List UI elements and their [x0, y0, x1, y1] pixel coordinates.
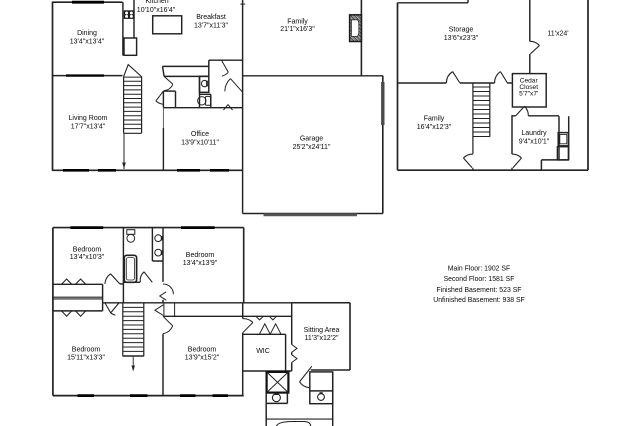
svg-text:13'4"x13'9": 13'4"x13'9" — [183, 260, 218, 267]
svg-text:Garage: Garage — [300, 136, 323, 143]
svg-text:Bedroom: Bedroom — [186, 252, 215, 259]
svg-text:13'7"x11'3": 13'7"x11'3" — [194, 23, 228, 30]
svg-text:Storage: Storage — [449, 27, 474, 34]
svg-text:Dining: Dining — [77, 30, 97, 37]
svg-text:21'1"x16'3": 21'1"x16'3" — [280, 26, 315, 33]
svg-text:16'4"x12'3": 16'4"x12'3" — [417, 124, 452, 131]
svg-text:10'10"x16'4": 10'10"x16'4" — [137, 7, 176, 14]
svg-text:9'4"x10'1": 9'4"x10'1" — [519, 139, 550, 146]
svg-text:Breakfast: Breakfast — [196, 14, 226, 21]
svg-text:Second Floor: 1581 SF: Second Floor: 1581 SF — [444, 276, 515, 283]
svg-text:13'9"x15'2": 13'9"x15'2" — [185, 355, 220, 362]
svg-text:13'9"x10'11": 13'9"x10'11" — [181, 140, 219, 147]
svg-text:Family: Family — [424, 116, 445, 123]
svg-text:13'4"x10'3": 13'4"x10'3" — [70, 254, 105, 261]
svg-text:13'4"x13'4": 13'4"x13'4" — [70, 39, 105, 46]
svg-text:Unfinished Basement: 938 SF: Unfinished Basement: 938 SF — [433, 297, 525, 304]
svg-text:25'2"x24'11": 25'2"x24'11" — [293, 144, 331, 151]
svg-text:5'7"x7': 5'7"x7' — [519, 91, 538, 98]
svg-text:13'6"x23'3": 13'6"x23'3" — [444, 35, 479, 42]
svg-text:Living Room: Living Room — [69, 115, 108, 122]
svg-text:11'x24': 11'x24' — [547, 31, 568, 38]
svg-text:Bedroom: Bedroom — [73, 246, 102, 253]
svg-text:15'11"x13'3": 15'11"x13'3" — [67, 355, 105, 362]
svg-text:Kitchen: Kitchen — [145, 0, 168, 5]
svg-text:17'7"x13'4": 17'7"x13'4" — [71, 124, 106, 131]
svg-text:Sitting Area: Sitting Area — [304, 327, 340, 334]
svg-text:Main Floor: 1902 SF: Main Floor: 1902 SF — [448, 266, 510, 273]
svg-text:Bedroom: Bedroom — [72, 347, 101, 354]
svg-text:11'3"x12'2": 11'3"x12'2" — [305, 335, 339, 342]
svg-text:Family: Family — [287, 19, 308, 26]
svg-text:Laundry: Laundry — [521, 130, 547, 137]
svg-text:Finished Basement: 523 SF: Finished Basement: 523 SF — [436, 287, 521, 294]
svg-text:Office: Office — [191, 131, 209, 138]
svg-text:WIC: WIC — [256, 348, 270, 355]
svg-text:Bedroom: Bedroom — [188, 347, 217, 354]
